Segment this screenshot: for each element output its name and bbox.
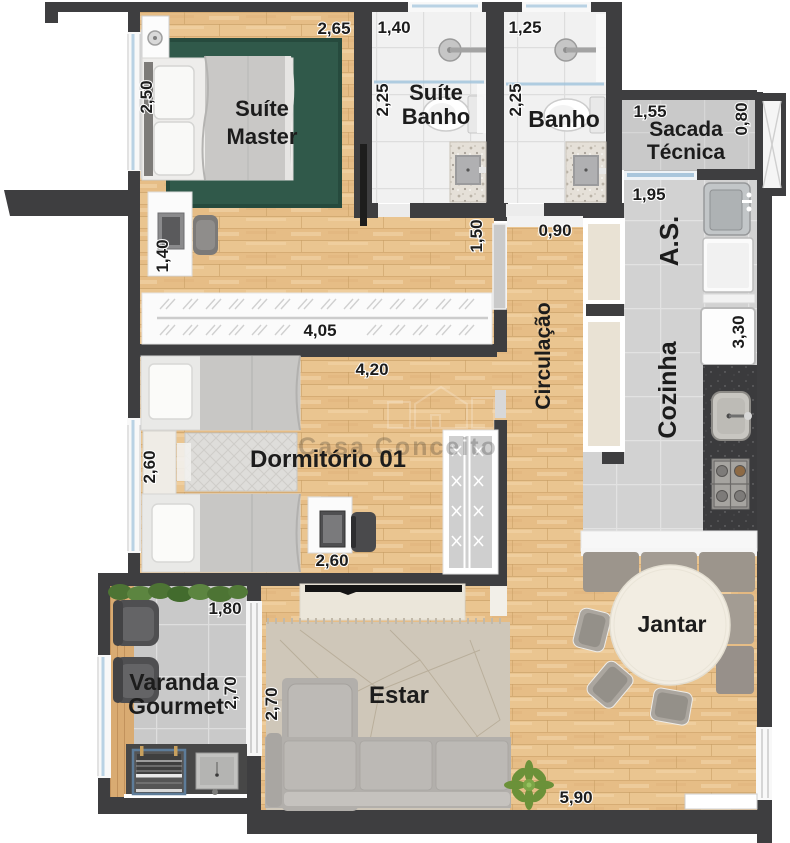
svg-text:Banho: Banho <box>528 106 600 132</box>
svg-text:Suíte: Suíte <box>235 96 289 121</box>
svg-text:2,70: 2,70 <box>262 687 281 720</box>
svg-text:0,90: 0,90 <box>538 221 571 240</box>
svg-text:Master: Master <box>227 124 298 149</box>
svg-text:1,40: 1,40 <box>153 239 172 272</box>
svg-text:Banho: Banho <box>402 104 470 129</box>
svg-text:0,80: 0,80 <box>732 102 751 135</box>
svg-text:Circulação: Circulação <box>532 302 555 409</box>
svg-text:1,95: 1,95 <box>632 185 665 204</box>
svg-text:A.S.: A.S. <box>654 216 684 267</box>
svg-text:1,55: 1,55 <box>633 102 666 121</box>
svg-text:2,25: 2,25 <box>506 83 525 116</box>
svg-text:Cozinha: Cozinha <box>654 340 682 438</box>
svg-text:Jantar: Jantar <box>637 611 706 637</box>
svg-text:2,70: 2,70 <box>221 676 240 709</box>
svg-text:2,65: 2,65 <box>317 19 350 38</box>
svg-text:1,25: 1,25 <box>508 18 541 37</box>
svg-text:2,60: 2,60 <box>315 551 348 570</box>
svg-text:1,50: 1,50 <box>467 219 486 252</box>
svg-text:2,25: 2,25 <box>373 83 392 116</box>
svg-text:Técnica: Técnica <box>647 141 726 164</box>
svg-text:Dormitório 01: Dormitório 01 <box>250 446 406 473</box>
svg-text:4,20: 4,20 <box>355 360 388 379</box>
svg-text:Varanda: Varanda <box>129 669 219 695</box>
svg-text:2,60: 2,60 <box>140 450 159 483</box>
svg-text:1,80: 1,80 <box>208 599 241 618</box>
svg-text:Suíte: Suíte <box>409 80 463 105</box>
svg-text:Estar: Estar <box>369 682 429 709</box>
svg-text:5,90: 5,90 <box>559 788 592 807</box>
svg-text:1,40: 1,40 <box>377 18 410 37</box>
svg-text:3,30: 3,30 <box>729 315 748 348</box>
svg-text:2,50: 2,50 <box>137 80 156 113</box>
svg-text:Sacada: Sacada <box>649 118 723 141</box>
svg-text:Gourmet: Gourmet <box>128 693 224 719</box>
svg-text:4,05: 4,05 <box>303 321 336 340</box>
